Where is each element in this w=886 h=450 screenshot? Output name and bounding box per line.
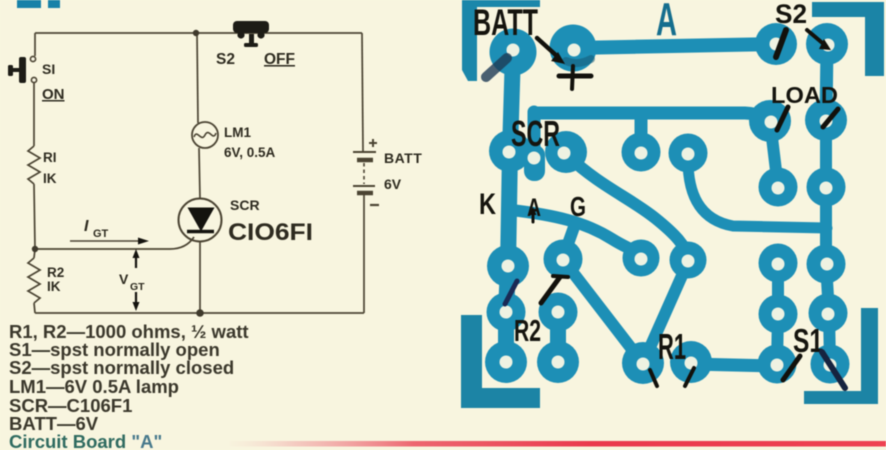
- svg-text:BATT: BATT: [384, 150, 422, 166]
- svg-text:OFF: OFF: [264, 51, 295, 68]
- svg-text:GT: GT: [130, 281, 145, 293]
- svg-text:6V, 0.5A: 6V, 0.5A: [224, 145, 276, 160]
- svg-text:SCR: SCR: [230, 197, 260, 213]
- svg-text:R1: R1: [658, 326, 686, 367]
- svg-text:LM1: LM1: [224, 125, 251, 140]
- svg-text:RI: RI: [43, 150, 57, 165]
- svg-text:SI: SI: [42, 61, 55, 77]
- svg-text:IK: IK: [47, 279, 61, 294]
- svg-text:ON: ON: [42, 86, 65, 103]
- svg-text:LM1—6V 0.5A lamp: LM1—6V 0.5A lamp: [9, 376, 179, 397]
- svg-text:A: A: [656, 0, 677, 45]
- svg-text:Circuit Board "A": Circuit Board "A": [9, 431, 162, 450]
- svg-text:LOAD: LOAD: [771, 82, 838, 108]
- svg-text:IK: IK: [43, 171, 57, 186]
- svg-text:G: G: [570, 191, 586, 222]
- svg-text:S2: S2: [216, 51, 235, 68]
- svg-text:K: K: [479, 188, 496, 221]
- svg-text:S1: S1: [793, 322, 823, 359]
- svg-text:S2—spst normally closed: S2—spst normally closed: [9, 357, 234, 378]
- svg-text:CIO6FI: CIO6FI: [228, 219, 313, 246]
- svg-text:R2: R2: [47, 265, 64, 280]
- svg-text:I: I: [84, 218, 89, 235]
- svg-text:S2: S2: [775, 0, 807, 29]
- svg-text:SCR: SCR: [511, 113, 560, 154]
- svg-text:BATT: BATT: [473, 2, 538, 43]
- svg-text:R2: R2: [514, 313, 541, 348]
- svg-text:6V: 6V: [384, 176, 402, 192]
- svg-text:V: V: [119, 271, 129, 287]
- svg-text:GT: GT: [93, 228, 109, 240]
